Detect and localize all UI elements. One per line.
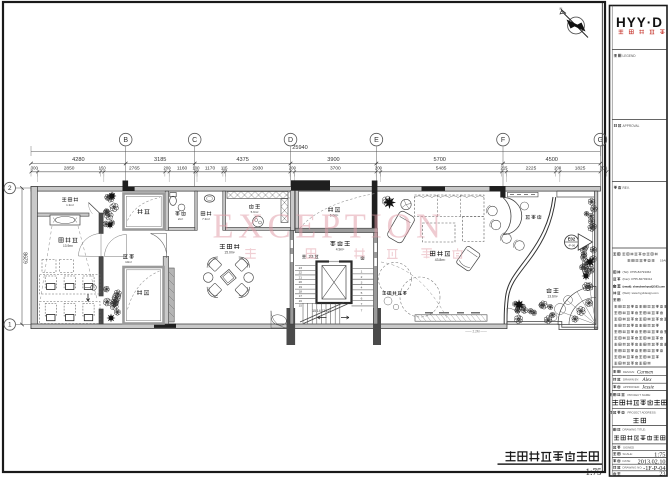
svg-text:HYY·D: HYY·D (616, 15, 663, 30)
svg-text:25940: 25940 (292, 145, 308, 151)
svg-text:4.9m²: 4.9m² (336, 248, 345, 252)
svg-text:20: 20 (299, 280, 303, 284)
svg-text:23: 23 (659, 471, 665, 478)
svg-text:(email): shenzhenhyyd@163.com: (email): shenzhenhyyd@163.com (623, 284, 666, 288)
svg-text:C: C (192, 137, 197, 144)
svg-text:7.3m²: 7.3m² (202, 217, 210, 221)
svg-text:D: D (288, 137, 293, 144)
svg-text:DATE:: DATE: (623, 459, 631, 463)
svg-text:4: 4 (361, 286, 363, 290)
svg-text:—— 2.2M ——: —— 2.2M —— (465, 329, 487, 333)
svg-text:1170: 1170 (205, 166, 216, 172)
svg-text:22: 22 (299, 271, 303, 275)
svg-text:19A6: 19A6 (660, 259, 667, 263)
svg-text:EXCEPTION: EXCEPTION (212, 208, 445, 246)
svg-text:(Tel): 0755-82793362: (Tel): 0755-82793362 (623, 270, 652, 274)
svg-text:G: G (598, 137, 603, 144)
svg-text:(Fax): 0755-82793312: (Fax): 0755-82793312 (623, 277, 653, 281)
svg-text:7: 7 (361, 309, 363, 313)
svg-text:1: 1 (361, 270, 363, 274)
svg-text:300: 300 (31, 166, 39, 171)
svg-text:13.9m²: 13.9m² (63, 244, 73, 248)
svg-text:(Web): www.hyyddesign.com: (Web): www.hyyddesign.com (623, 291, 660, 295)
svg-text:15: 15 (299, 304, 303, 308)
svg-text:1160: 1160 (177, 166, 188, 172)
svg-text::: : (622, 298, 623, 302)
svg-text:6298: 6298 (24, 252, 30, 264)
svg-text:21: 21 (299, 275, 303, 279)
svg-text:B: B (123, 137, 128, 144)
svg-text:DRAWN BY:: DRAWN BY: (623, 378, 639, 382)
svg-text:19: 19 (299, 285, 303, 289)
svg-text:Alex: Alex (642, 378, 653, 383)
svg-text:2930: 2930 (252, 166, 263, 172)
svg-text:17: 17 (299, 294, 303, 298)
svg-text:SCALE:: SCALE: (623, 452, 633, 456)
svg-text:5485: 5485 (436, 166, 447, 172)
svg-text:2m²: 2m² (178, 217, 183, 221)
svg-text:2225: 2225 (526, 166, 537, 172)
svg-text:LEGEND: LEGEND (623, 54, 637, 58)
svg-text:E02: E02 (568, 237, 576, 242)
svg-text:REV.: REV. (623, 186, 630, 190)
svg-text:16: 16 (299, 299, 303, 303)
svg-text:APPROVED:: APPROVED: (623, 385, 640, 389)
svg-text:DRAWING NO:: DRAWING NO: (623, 466, 643, 470)
svg-text:1:75: 1:75 (585, 467, 602, 477)
svg-text:10m²: 10m² (125, 260, 132, 264)
svg-text:PROJECT ADDRESS:: PROJECT ADDRESS: (628, 411, 657, 415)
svg-text:18: 18 (299, 290, 303, 294)
svg-text:2765: 2765 (129, 166, 140, 172)
svg-text:300: 300 (600, 166, 608, 171)
svg-text:43.8m²: 43.8m² (435, 258, 446, 262)
svg-text:6: 6 (361, 296, 363, 300)
svg-text:Carmen: Carmen (637, 370, 654, 375)
svg-text:7: 7 (361, 302, 363, 306)
svg-text:3900: 3900 (327, 157, 339, 163)
svg-text:SIGNED: SIGNED (623, 446, 634, 450)
svg-text:3: 3 (361, 280, 363, 284)
svg-text:115: 115 (221, 166, 228, 171)
svg-text:DRAWING TITLE:: DRAWING TITLE: (623, 428, 646, 432)
svg-text:5: 5 (361, 291, 363, 295)
svg-text:100: 100 (192, 166, 200, 171)
svg-text:13.6m²: 13.6m² (547, 295, 558, 299)
svg-text:150: 150 (99, 166, 107, 171)
svg-text:1: 1 (8, 322, 12, 329)
svg-text:15 14 13 12: 15 14 13 12 (312, 309, 330, 313)
svg-text:2: 2 (361, 275, 363, 279)
svg-text:15.0m²: 15.0m² (224, 251, 235, 255)
svg-text:2: 2 (8, 185, 12, 192)
svg-text:4280: 4280 (72, 157, 84, 163)
svg-text:5700: 5700 (433, 157, 445, 163)
svg-text:23: 23 (299, 266, 303, 270)
svg-text:1825: 1825 (575, 166, 586, 172)
svg-text:1.3m²: 1.3m² (66, 203, 74, 207)
svg-text:Jessie: Jessie (642, 386, 655, 391)
svg-text:DESIGN:: DESIGN: (623, 370, 635, 374)
svg-text:3700: 3700 (330, 166, 341, 172)
svg-text:-P-06: -P-06 (568, 244, 576, 248)
svg-text:2850: 2850 (64, 166, 75, 172)
svg-text:APPROVAL: APPROVAL (623, 124, 640, 128)
svg-text:E: E (374, 137, 379, 144)
svg-text:3185: 3185 (154, 157, 166, 163)
svg-text:4500: 4500 (545, 157, 557, 163)
svg-text:PROJECT NAME:: PROJECT NAME: (628, 393, 652, 397)
svg-text:N: N (560, 6, 563, 11)
svg-text:4375: 4375 (236, 157, 248, 163)
svg-text:F: F (501, 137, 505, 144)
